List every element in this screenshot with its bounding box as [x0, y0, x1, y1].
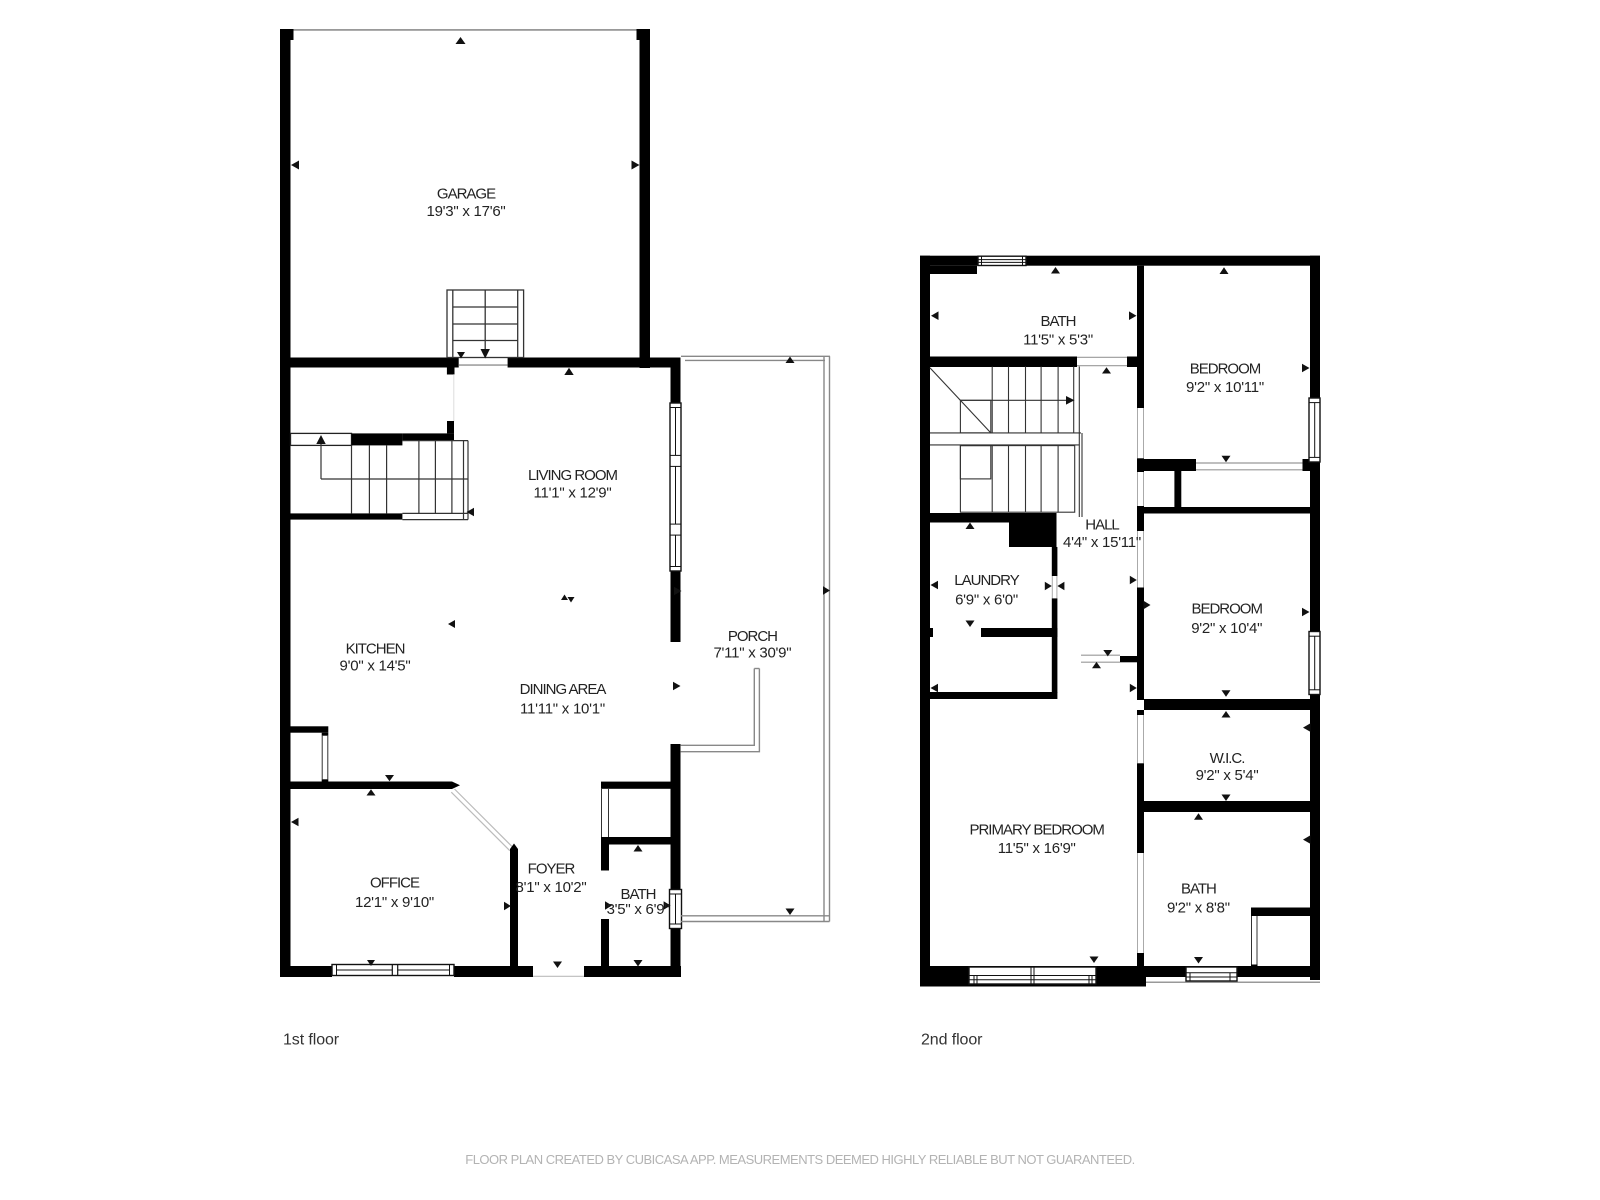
svg-text:FOYER: FOYER [528, 860, 576, 877]
svg-text:3'5" x 6'9": 3'5" x 6'9" [607, 901, 670, 918]
svg-text:4'4" x 15'11": 4'4" x 15'11" [1063, 534, 1141, 551]
svg-text:PRIMARY BEDROOM: PRIMARY BEDROOM [969, 822, 1104, 839]
svg-text:11'5" x 5'3": 11'5" x 5'3" [1023, 332, 1093, 349]
svg-text:BATH: BATH [1041, 313, 1076, 330]
svg-text:HALL: HALL [1085, 517, 1119, 534]
svg-text:9'0" x 14'5": 9'0" x 14'5" [340, 658, 411, 675]
svg-text:6'9" x 6'0": 6'9" x 6'0" [955, 591, 1018, 608]
svg-text:2nd floor: 2nd floor [921, 1032, 983, 1049]
svg-text:1st floor: 1st floor [283, 1032, 340, 1049]
svg-text:OFFICE: OFFICE [370, 875, 420, 892]
svg-text:LAUNDRY: LAUNDRY [954, 572, 1019, 589]
svg-text:GARAGE: GARAGE [437, 186, 496, 203]
svg-text:11'11" x 10'1": 11'11" x 10'1" [520, 701, 605, 718]
svg-text:9'2" x 10'11": 9'2" x 10'11" [1186, 379, 1264, 396]
svg-text:9'2" x 8'8": 9'2" x 8'8" [1167, 900, 1230, 917]
svg-text:11'1" x 12'9": 11'1" x 12'9" [534, 484, 612, 501]
svg-text:BEDROOM: BEDROOM [1191, 601, 1262, 618]
svg-text:PORCH: PORCH [728, 628, 777, 645]
svg-text:19'3" x 17'6": 19'3" x 17'6" [426, 203, 505, 220]
svg-text:9'2" x 5'4": 9'2" x 5'4" [1196, 767, 1259, 784]
svg-text:9'2" x 10'4": 9'2" x 10'4" [1191, 620, 1262, 637]
svg-text:W.I.C.: W.I.C. [1210, 750, 1245, 767]
svg-text:8'1" x 10'2": 8'1" x 10'2" [516, 879, 587, 896]
svg-text:FLOOR PLAN CREATED BY CUBICASA: FLOOR PLAN CREATED BY CUBICASA APP. MEAS… [465, 1152, 1134, 1167]
svg-text:BATH: BATH [1181, 881, 1216, 898]
svg-text:KITCHEN: KITCHEN [346, 640, 405, 657]
svg-text:11'5" x 16'9": 11'5" x 16'9" [998, 840, 1076, 857]
svg-text:LIVING ROOM: LIVING ROOM [528, 467, 618, 484]
svg-text:12'1" x 9'10": 12'1" x 9'10" [355, 894, 434, 911]
svg-text:7'11" x 30'9": 7'11" x 30'9" [713, 644, 791, 661]
svg-text:DINING AREA: DINING AREA [520, 681, 607, 698]
svg-text:BEDROOM: BEDROOM [1190, 360, 1261, 377]
